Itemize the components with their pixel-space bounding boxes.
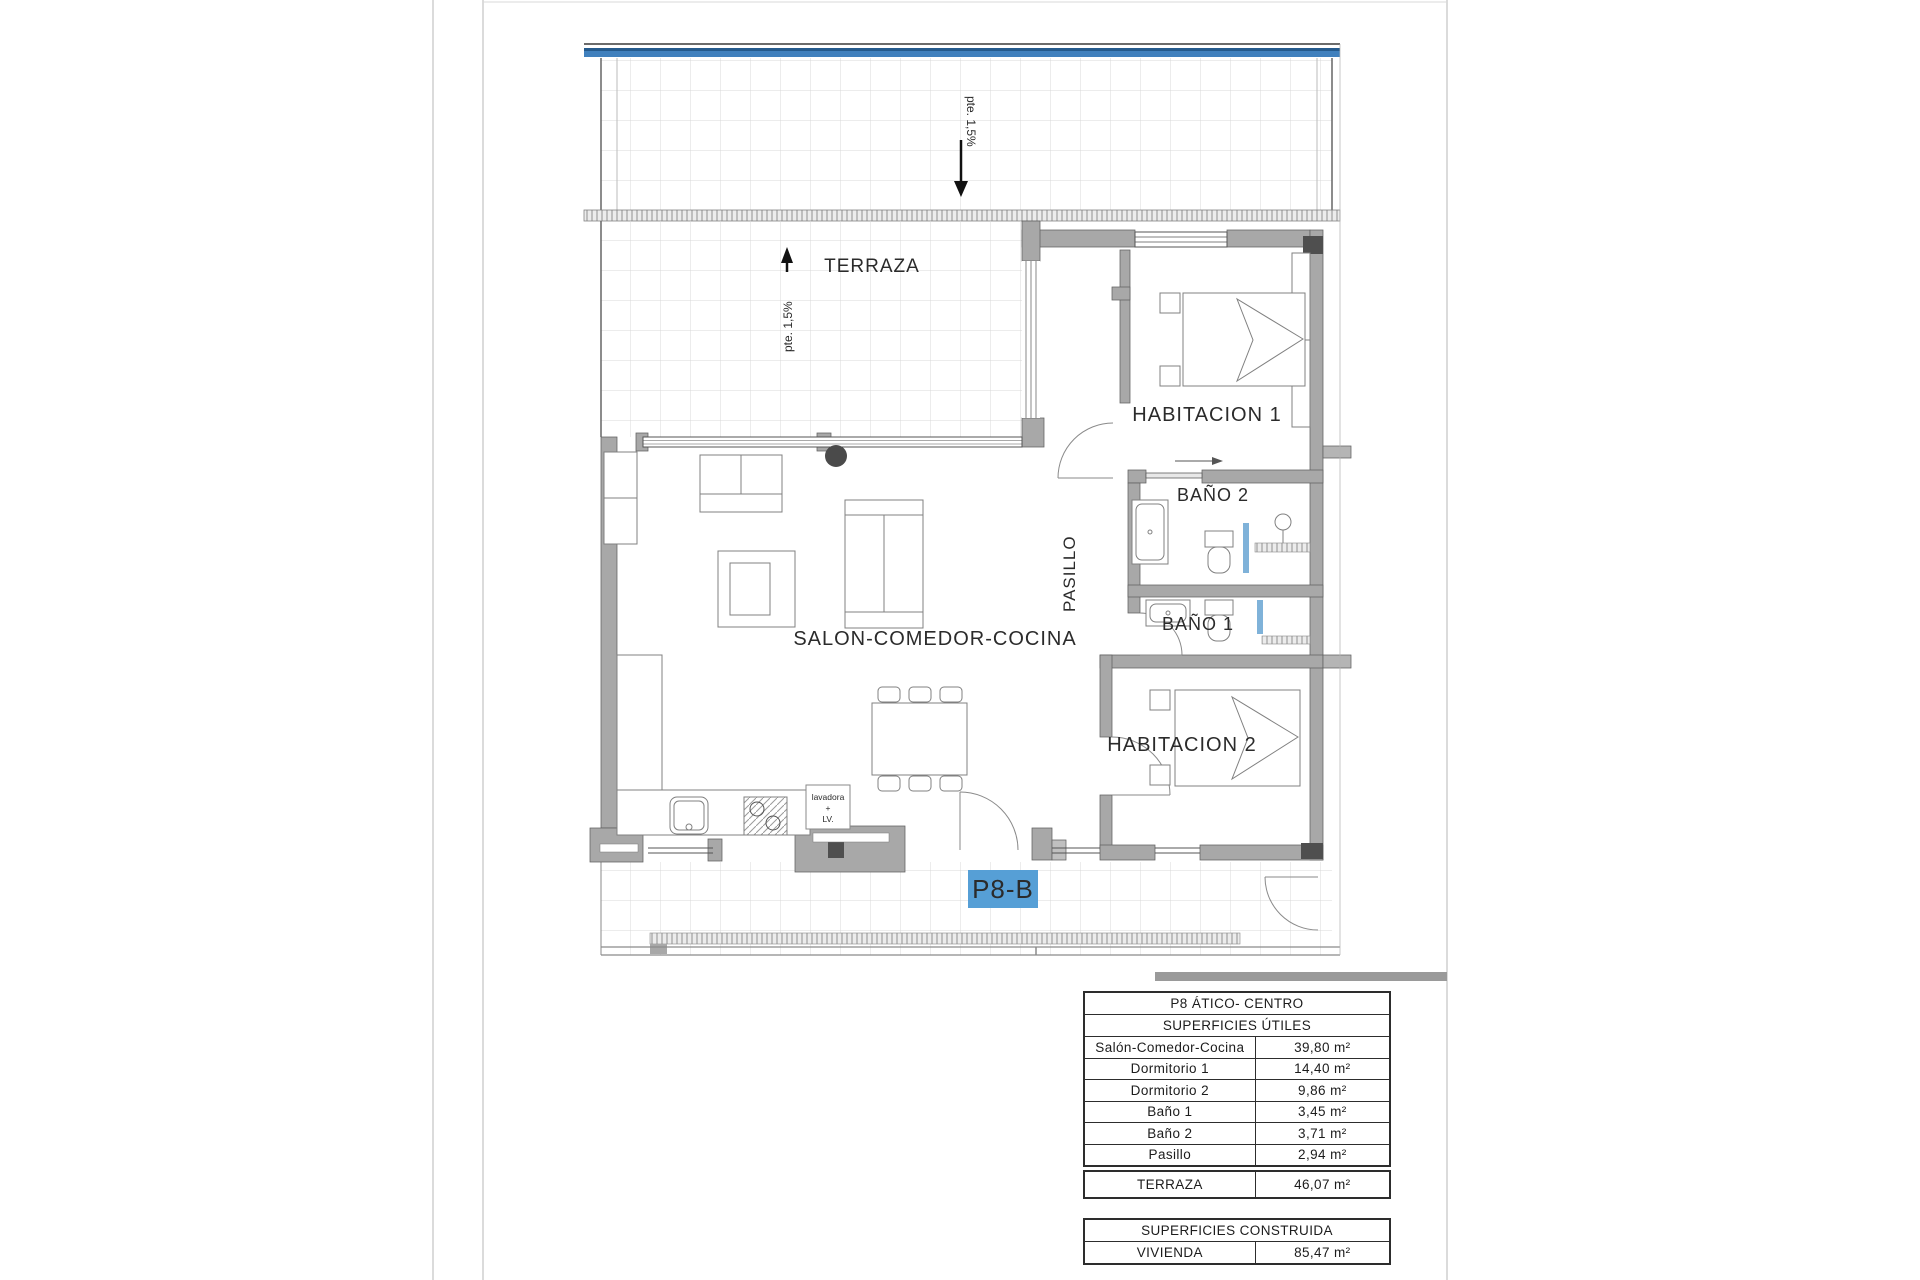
bano1-label: BAÑO 1 [1162,613,1234,634]
table-subtitle: SUPERFICIES ÚTILES [1085,1014,1389,1036]
bano2-sliding-door [1146,473,1202,478]
table-subtitle-text: SUPERFICIES ÚTILES [1163,1018,1311,1033]
row-value: 9,86 m² [1256,1080,1389,1101]
entrance-door-arc [960,792,1018,850]
appliance-label-3: LV. [822,814,833,824]
row-label: Baño 1 [1085,1102,1256,1123]
toilet-tank [1205,531,1233,547]
row-label: Dormitorio 1 [1085,1059,1256,1080]
table-row: Dormitorio 1 14,40 m² [1085,1058,1389,1080]
terraza-area: pte. 1,5% TERRAZA [601,221,1022,437]
radiator [1255,543,1310,552]
toilet-tank [1205,600,1233,615]
nightstand [1150,690,1170,710]
terraza-slope-label: pte. 1,5% [781,301,795,352]
table-row: TERRAZA 46,07 m² [1085,1172,1389,1197]
drawing-sheet: pte. 1,5% pte. 1,5% TERRAZA [0,0,1920,1280]
appliance-label-2: + [826,803,831,813]
row-label: VIVIENDA [1085,1242,1256,1263]
roof-slope-label: pte. 1,5% [964,96,978,147]
row-label: Baño 2 [1085,1123,1256,1144]
shower-glass-panel [1257,600,1263,634]
toilet-bowl [1208,547,1230,573]
row-label: TERRAZA [1085,1172,1256,1197]
appliance-label-1: lavadora [812,792,845,802]
hab1-door-arc [1058,423,1113,478]
radiator [1262,636,1310,644]
habitacion2-label: HABITACION 2 [1107,734,1256,756]
row-label: Salón-Comedor-Cocina [1085,1037,1256,1058]
kitchen-wall-vent [600,844,638,852]
row-value: 46,07 m² [1256,1172,1389,1197]
bed [1183,293,1305,386]
row-value: 3,45 m² [1256,1102,1389,1123]
chair [909,776,931,791]
dining-table [872,703,967,775]
areas-table-terraza: TERRAZA 46,07 m² [1083,1170,1391,1199]
nightstand [1160,293,1180,313]
shower-glass-panel [1243,523,1249,573]
table-title-text: P8 ÁTICO- CENTRO [1170,996,1303,1011]
kitchen-counter-west [617,655,662,790]
unit-badge: P8-B [968,870,1038,908]
nightstand [1160,366,1180,386]
towel-dryer [1275,514,1291,530]
table-title: SUPERFICIES CONSTRUIDA [1085,1220,1389,1241]
roof-edge-hatch [584,210,1340,221]
habitacion1-furniture [1160,253,1310,427]
chair [909,687,931,702]
areas-table-utiles: P8 ÁTICO- CENTRO SUPERFICIES ÚTILES Saló… [1083,991,1391,1167]
table-row: VIVIENDA 85,47 m² [1085,1241,1389,1263]
arrow-right-icon [1212,457,1223,465]
salon-label: SALON-COMEDOR-COCINA [793,628,1076,650]
table-row: Pasillo 2,94 m² [1085,1144,1389,1166]
chair [878,776,900,791]
chair [940,687,962,702]
section-cut-bar [1155,972,1447,981]
row-label: Pasillo [1085,1145,1256,1166]
cooktop [744,797,787,835]
floor-plan: pte. 1,5% pte. 1,5% TERRAZA [0,0,1920,1280]
table-row: Salón-Comedor-Cocina 39,80 m² [1085,1036,1389,1058]
row-value: 14,40 m² [1256,1059,1389,1080]
row-value: 85,47 m² [1256,1242,1389,1263]
table-title: P8 ÁTICO- CENTRO [1085,993,1389,1014]
terraza-label: TERRAZA [824,256,920,277]
row-label: Dormitorio 2 [1085,1080,1256,1101]
chair [878,687,900,702]
structural-column [825,445,847,467]
row-value: 3,71 m² [1256,1123,1389,1144]
terrace-glass-railing [584,44,1340,57]
table-row: Baño 2 3,71 m² [1085,1122,1389,1144]
nightstand [1150,765,1170,785]
pasillo-label: PASILLO [1060,535,1079,612]
chair [940,776,962,791]
row-value: 2,94 m² [1256,1145,1389,1166]
table-row: Baño 1 3,45 m² [1085,1101,1389,1123]
areas-table-construida: SUPERFICIES CONSTRUIDA VIVIENDA 85,47 m² [1083,1218,1391,1265]
bano2-label: BAÑO 2 [1177,484,1249,505]
entrance-porch-step [813,833,889,842]
unit-badge-label: P8-B [972,874,1034,904]
habitacion1-label: HABITACION 1 [1132,404,1281,426]
row-value: 39,80 m² [1256,1037,1389,1058]
table-row: Dormitorio 2 9,86 m² [1085,1079,1389,1101]
table-title-text: SUPERFICIES CONSTRUIDA [1141,1223,1333,1238]
